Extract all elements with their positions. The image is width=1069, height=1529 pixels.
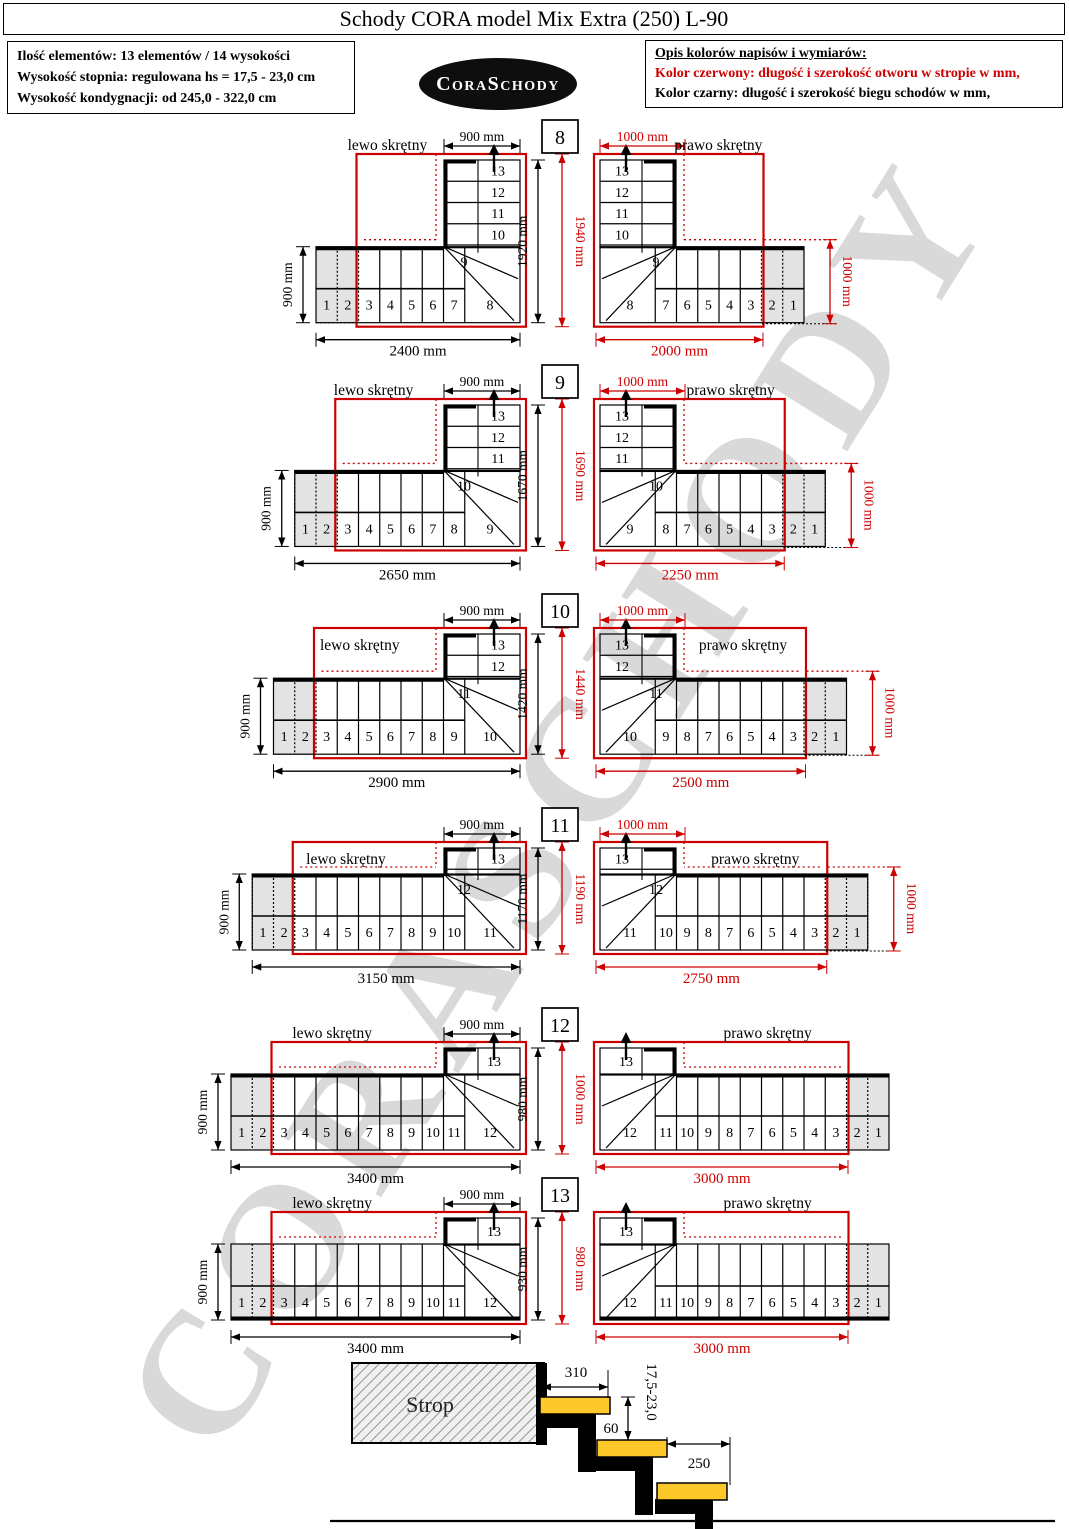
upper-run-outline	[444, 1048, 520, 1075]
step-number: 13	[491, 639, 505, 654]
step-number: 13	[487, 1225, 501, 1240]
step-tread	[540, 1397, 610, 1414]
variant-label: prawo skrętny	[687, 382, 775, 399]
step-number: 9	[705, 1126, 712, 1141]
run-height-red-label: 1000 mm	[573, 1073, 588, 1125]
variant-number: 10	[550, 601, 570, 623]
dim-arrowhead	[511, 1030, 520, 1037]
step-number: 3	[281, 1126, 288, 1141]
step-number: 13	[491, 853, 505, 868]
bottom-run-outline	[231, 1244, 520, 1320]
dim-arrowhead	[869, 746, 876, 755]
step-number: 1	[832, 730, 839, 745]
dim-arrowhead	[558, 399, 565, 408]
dim-arrowhead	[558, 749, 565, 758]
dim-arrowhead	[599, 1383, 608, 1390]
step-number: 11	[615, 207, 628, 222]
variant-label: lewo skrętny	[292, 1195, 372, 1212]
dim-arrowhead	[511, 768, 520, 775]
stair-row-9-right-diagram: 123456789131211101000 mm2250 mm1000 mmpr…	[594, 374, 876, 583]
variant-number: 11	[550, 815, 569, 837]
step-number: 6	[366, 926, 373, 941]
dim-arrowhead	[534, 745, 541, 754]
bottom-dim-label: 2500 mm	[672, 775, 729, 791]
step-post	[578, 1413, 596, 1472]
step-number: 8	[451, 522, 458, 537]
step-number: 2	[281, 926, 288, 941]
winder-diagonal	[444, 678, 518, 710]
dim-arrowhead	[667, 1440, 676, 1447]
step-tread	[657, 1483, 727, 1500]
dim-arrowhead	[534, 941, 541, 950]
step-number: 9	[684, 926, 691, 941]
side-dim-label: 1000 mm	[883, 687, 898, 739]
upper-run-outline	[444, 405, 520, 471]
step-number: 3	[302, 926, 309, 941]
bottom-dim-label: 2650 mm	[379, 567, 436, 583]
step-number: 1	[875, 1296, 882, 1311]
step-number: 6	[387, 730, 394, 745]
side-dim-label: 900 mm	[195, 1259, 210, 1304]
step-number: 6	[344, 1126, 351, 1141]
step-number: 4	[387, 299, 394, 314]
dim-arrowhead	[596, 768, 605, 775]
winder-diagonal	[602, 1074, 676, 1106]
step-number: 6	[344, 1296, 351, 1311]
step-number: 2	[811, 730, 818, 745]
top-dim-label: 1000 mm	[617, 374, 669, 389]
step-number: 1	[238, 1296, 245, 1311]
step-number: 13	[615, 410, 629, 425]
bottom-dim-label: 3400 mm	[347, 1171, 404, 1187]
step-number: 13	[491, 410, 505, 425]
stair-row-10: 12345678910131211900 mm900 mm2900 mmlewo…	[238, 594, 898, 791]
dim-arrowhead	[558, 318, 565, 327]
dim-arrowhead	[826, 315, 833, 324]
top-dim-label: 900 mm	[460, 1187, 505, 1202]
step-number: 5	[747, 730, 754, 745]
dim-arrowhead	[444, 616, 453, 623]
stair-row-9-left-diagram: 12345678913121110900 mm900 mm2650 mmlewo…	[259, 374, 526, 583]
step-number: 2	[832, 926, 839, 941]
dim-arrowhead	[231, 1333, 240, 1340]
step-number: 7	[366, 1126, 373, 1141]
variant-number: 9	[555, 372, 565, 394]
step-number: 5	[769, 926, 776, 941]
step-number: 8	[627, 299, 634, 314]
step-number: 2	[769, 299, 776, 314]
step-number: 12	[483, 1126, 497, 1141]
dim-arrowhead	[839, 1333, 848, 1340]
side-dim-label: 900 mm	[259, 486, 274, 531]
dim-arrowhead	[596, 963, 605, 970]
step-number: 13	[615, 853, 629, 868]
info-line-elements: Ilość elementów: 13 elementów / 14 wysok…	[17, 46, 345, 67]
run-height-red-label: 1440 mm	[573, 668, 588, 720]
dim-arrowhead	[444, 387, 453, 394]
bottom-run-outline	[600, 1244, 889, 1320]
step-number: 1	[875, 1126, 882, 1141]
side-dim-label: 900 mm	[216, 889, 231, 934]
dim-250: 250	[688, 1456, 711, 1472]
stair-row-12-right-diagram: 123456789101112133000 mmprawo skrętny	[594, 1025, 889, 1187]
dim-arrowhead	[600, 142, 609, 149]
step-number: 5	[366, 730, 373, 745]
dim-arrowhead	[511, 142, 520, 149]
step-number: 1	[302, 522, 309, 537]
variant-label: lewo skrętny	[334, 382, 414, 399]
run-height-black-label: 930 mm	[515, 1246, 530, 1291]
upper-run-outline	[600, 1048, 676, 1075]
step-number: 10	[680, 1296, 694, 1311]
step-number: 1	[259, 926, 266, 941]
dim-arrowhead	[511, 336, 520, 343]
dim-arrowhead	[444, 142, 453, 149]
run-height-black-label: 1420 mm	[515, 668, 530, 720]
step-number: 12	[649, 883, 663, 898]
stair-diagrams-canvas: 12345678131211109900 mm900 mm2400 mmlewo…	[0, 0, 1069, 1529]
dim-arrowhead	[558, 1145, 565, 1154]
winder-diagonal	[444, 874, 518, 906]
top-dim-label: 900 mm	[460, 129, 505, 144]
step-number: 11	[649, 687, 662, 702]
dim-arrowhead	[558, 541, 565, 550]
dim-riser-range: 17,5-23,0	[643, 1363, 659, 1421]
dim-arrowhead	[444, 1030, 453, 1037]
step-number: 6	[726, 730, 733, 745]
dim-arrowhead	[558, 1315, 565, 1324]
color-legend-box: Opis kolorów napisów i wymiarów: Kolor c…	[645, 40, 1063, 108]
step-number: 5	[705, 299, 712, 314]
dim-arrowhead	[214, 1074, 221, 1083]
dim-arrowhead	[596, 336, 605, 343]
variant-number: 8	[555, 127, 565, 149]
step-number: 3	[281, 1296, 288, 1311]
step-number: 10	[649, 479, 663, 494]
upper-run-outline	[600, 160, 676, 248]
winder-diagonal	[602, 874, 676, 906]
step-number: 8	[487, 299, 494, 314]
step-number: 10	[426, 1126, 440, 1141]
dim-arrowhead	[214, 1244, 221, 1253]
step-number: 9	[408, 1296, 415, 1311]
step-number: 8	[705, 926, 712, 941]
dim-arrowhead	[558, 1212, 565, 1221]
run-height-red-label: 980 mm	[573, 1247, 588, 1292]
variant-number: 13	[550, 1185, 570, 1207]
variant-label: prawo skrętny	[674, 137, 762, 154]
dim-arrowhead	[600, 830, 609, 837]
step-number: 2	[259, 1296, 266, 1311]
step-number: 7	[747, 1126, 754, 1141]
side-dim-label: 900 mm	[195, 1089, 210, 1134]
top-dim-label: 1000 mm	[617, 129, 669, 144]
step-number: 8	[726, 1296, 733, 1311]
dim-arrowhead	[558, 628, 565, 637]
dim-arrowhead	[444, 830, 453, 837]
step-number: 8	[408, 926, 415, 941]
top-dim-label: 900 mm	[460, 603, 505, 618]
step-number: 4	[302, 1296, 309, 1311]
step-number: 1	[811, 522, 818, 537]
info-box: Ilość elementów: 13 elementów / 14 wysok…	[7, 41, 355, 114]
dim-arrowhead	[848, 538, 855, 547]
dim-arrowhead	[278, 537, 285, 546]
dim-arrowhead	[558, 945, 565, 954]
side-dim-label: 900 mm	[238, 693, 253, 738]
stair-row-10-right-diagram: 123456789101312111000 mm2500 mm1000 mmpr…	[594, 603, 898, 791]
stair-row-8-right-diagram: 123456781312111091000 mm2000 mm1000 mmpr…	[594, 129, 855, 360]
step-number: 10	[659, 926, 673, 941]
step-number: 12	[491, 660, 505, 675]
top-dim-label: 900 mm	[460, 817, 505, 832]
dim-arrowhead	[534, 634, 541, 643]
step-number: 4	[344, 730, 351, 745]
step-number: 9	[451, 730, 458, 745]
upper-run-outline	[600, 405, 676, 471]
upper-run-outline	[600, 1218, 676, 1245]
page: Schody CORA model Mix Extra (250) L-90 I…	[0, 0, 1069, 1529]
step-number: 5	[408, 299, 415, 314]
step-number: 12	[483, 1296, 497, 1311]
dim-arrowhead	[839, 1163, 848, 1170]
upper-run-outline	[444, 1218, 520, 1245]
legend-black-line: Kolor czarny: długość i szerokość biegu …	[655, 84, 1053, 104]
dim-arrowhead	[257, 745, 264, 754]
step-number: 1	[790, 299, 797, 314]
top-dim-label: 900 mm	[460, 1017, 505, 1032]
winder-diagonal	[602, 678, 676, 710]
step-number: 12	[491, 431, 505, 446]
step-number: 10	[483, 730, 497, 745]
run-height-black-label: 1170 mm	[515, 873, 530, 924]
step-number: 5	[344, 926, 351, 941]
step-number: 8	[387, 1126, 394, 1141]
step-number: 3	[344, 522, 351, 537]
stair-row-12-left-diagram: 12345678910111213900 mm900 mm3400 mmlewo…	[195, 1017, 526, 1187]
dim-310: 310	[565, 1365, 588, 1381]
upper-run-outline	[600, 634, 676, 679]
dim-arrowhead	[214, 1311, 221, 1320]
dim-arrowhead	[534, 848, 541, 857]
dim-arrowhead	[848, 463, 855, 472]
dim-arrowhead	[534, 160, 541, 169]
step-number: 10	[680, 1126, 694, 1141]
run-height-red-label: 1190 mm	[573, 874, 588, 925]
step-number: 8	[387, 1296, 394, 1311]
upper-run-outline	[600, 848, 676, 875]
variant-label: lewo skrętny	[320, 637, 400, 654]
dim-arrowhead	[236, 941, 243, 950]
side-dim-label: 1000 mm	[904, 883, 919, 935]
stair-row-8-left-diagram: 12345678131211109900 mm900 mm2400 mmlewo…	[280, 129, 526, 360]
dim-arrowhead	[721, 1440, 730, 1447]
step-number: 12	[457, 883, 471, 898]
dim-arrowhead	[511, 1333, 520, 1340]
step-number: 9	[408, 1126, 415, 1141]
step-number: 11	[457, 687, 470, 702]
stair-row-13-left-diagram: 12345678910111213900 mm900 mm3400 mmlewo…	[195, 1187, 526, 1357]
run-height-red-label: 1940 mm	[573, 216, 588, 268]
step-number: 7	[429, 522, 436, 537]
variant-number: 12	[550, 1015, 570, 1037]
dim-arrowhead	[596, 1333, 605, 1340]
variant-label: lewo skrętny	[348, 137, 428, 154]
step-number: 11	[491, 452, 504, 467]
dim-arrowhead	[511, 963, 520, 970]
bottom-dim-label: 3400 mm	[347, 1341, 404, 1357]
cross-section: Strop31017,5-23,060250	[330, 1363, 1055, 1529]
exit-arrow-head	[621, 1202, 632, 1213]
step-number: 10	[426, 1296, 440, 1311]
step-number: 12	[491, 186, 505, 201]
dim-arrowhead	[600, 387, 609, 394]
step-number: 11	[491, 207, 504, 222]
step-number: 11	[483, 926, 496, 941]
step-number: 12	[623, 1296, 637, 1311]
step-number: 13	[619, 1225, 633, 1240]
winder-diagonal	[444, 1074, 518, 1106]
step-number: 13	[615, 639, 629, 654]
step-number: 7	[747, 1296, 754, 1311]
run-height-black-label: 980 mm	[515, 1076, 530, 1121]
dim-arrowhead	[257, 678, 264, 687]
legend-red-line: Kolor czerwony: długość i szerokość otwo…	[655, 64, 1053, 84]
bottom-run-outline	[600, 1074, 889, 1150]
strop-label: Strop	[406, 1392, 454, 1417]
step-number: 2	[854, 1126, 861, 1141]
run-height-red-label: 1690 mm	[573, 450, 588, 502]
side-dim-label: 1000 mm	[861, 479, 876, 531]
info-line-storey-height: Wysokość kondygnacji: od 245,0 - 322,0 c…	[17, 88, 345, 109]
cora-schody-logo: CoraSchody	[419, 58, 577, 110]
upper-run-outline	[444, 634, 520, 679]
winder-diagonal	[444, 1244, 518, 1276]
step-tread	[597, 1440, 667, 1457]
step-number: 11	[615, 452, 628, 467]
legend-heading: Opis kolorów napisów i wymiarów:	[655, 44, 1053, 64]
step-number: 6	[684, 299, 691, 314]
exit-arrow-head	[621, 1032, 632, 1043]
step-number: 9	[653, 256, 660, 271]
step-number: 5	[726, 522, 733, 537]
step-number: 12	[615, 186, 629, 201]
variant-label: prawo skrętny	[711, 851, 799, 868]
variant-label: lewo skrętny	[292, 1025, 372, 1042]
step-number: 4	[747, 522, 754, 537]
step-post	[695, 1499, 713, 1529]
step-number: 9	[627, 522, 634, 537]
step-number: 2	[854, 1296, 861, 1311]
step-number: 4	[302, 1126, 309, 1141]
side-dim-label: 1000 mm	[840, 256, 855, 308]
variant-label: prawo skrętny	[699, 637, 787, 654]
upper-run-outline	[444, 848, 520, 875]
step-number: 1	[238, 1126, 245, 1141]
bottom-dim-label: 2250 mm	[662, 567, 719, 583]
step-number: 13	[615, 165, 629, 180]
step-number: 12	[615, 660, 629, 675]
dim-arrowhead	[534, 537, 541, 546]
bottom-dim-label: 2400 mm	[389, 344, 446, 360]
step-number: 2	[323, 522, 330, 537]
step-number: 3	[769, 522, 776, 537]
step-number: 12	[615, 431, 629, 446]
dim-arrowhead	[299, 247, 306, 256]
top-dim-label: 1000 mm	[617, 817, 669, 832]
dim-arrowhead	[818, 963, 827, 970]
step-number: 2	[344, 299, 351, 314]
step-number: 9	[662, 730, 669, 745]
step-number: 5	[790, 1296, 797, 1311]
stair-row-13-right-diagram: 123456789101112133000 mmprawo skrętny	[594, 1195, 889, 1357]
step-number: 9	[487, 522, 494, 537]
step-number: 2	[259, 1126, 266, 1141]
dim-arrowhead	[624, 1431, 631, 1440]
dim-arrowhead	[797, 768, 806, 775]
step-number: 5	[323, 1126, 330, 1141]
variant-label: prawo skrętny	[723, 1195, 811, 1212]
dim-arrowhead	[558, 1042, 565, 1051]
winder-diagonal	[602, 470, 676, 502]
bottom-dim-label: 2900 mm	[368, 775, 425, 791]
step-number: 1	[323, 299, 330, 314]
step-number: 7	[726, 926, 733, 941]
step-number: 7	[366, 1296, 373, 1311]
dim-arrowhead	[252, 963, 261, 970]
step-number: 6	[705, 522, 712, 537]
step-number: 5	[387, 522, 394, 537]
step-number: 6	[747, 926, 754, 941]
dim-arrowhead	[534, 314, 541, 323]
step-number: 3	[366, 299, 373, 314]
dim-arrowhead	[511, 560, 520, 567]
dim-60: 60	[604, 1421, 619, 1437]
dim-arrowhead	[596, 560, 605, 567]
step-number: 7	[408, 730, 415, 745]
top-dim-label: 900 mm	[460, 374, 505, 389]
dim-arrowhead	[511, 1200, 520, 1207]
dim-arrowhead	[534, 1141, 541, 1150]
dim-arrowhead	[511, 387, 520, 394]
upper-run-outline	[444, 160, 520, 248]
stair-row-9: 12345678913121110900 mm900 mm2650 mmlewo…	[259, 365, 877, 583]
step-number: 12	[623, 1126, 637, 1141]
winder-diagonal	[444, 470, 518, 502]
stair-row-10-left-diagram: 12345678910131211900 mm900 mm2900 mmlewo…	[238, 603, 527, 791]
step-number: 4	[366, 522, 373, 537]
dim-arrowhead	[676, 830, 685, 837]
dim-arrowhead	[534, 1218, 541, 1227]
winder-diagonal	[444, 247, 518, 279]
step-number: 9	[705, 1296, 712, 1311]
step-number: 7	[387, 926, 394, 941]
step-number: 10	[457, 479, 471, 494]
step-number: 6	[769, 1296, 776, 1311]
dim-arrowhead	[214, 1141, 221, 1150]
stair-row-11-left-diagram: 12345678910111312900 mm900 mm3150 mmlewo…	[216, 817, 526, 987]
dim-arrowhead	[596, 1163, 605, 1170]
title-text: Schody CORA model Mix Extra (250) L-90	[340, 6, 729, 31]
step-number: 5	[790, 1126, 797, 1141]
step-number: 4	[811, 1296, 818, 1311]
step-number: 3	[790, 730, 797, 745]
step-number: 8	[726, 1126, 733, 1141]
dim-arrowhead	[295, 560, 304, 567]
info-line-step-height: Wysokość stopnia: regulowana hs = 17,5 -…	[17, 67, 345, 88]
dim-arrowhead	[236, 874, 243, 883]
step-number: 5	[323, 1296, 330, 1311]
